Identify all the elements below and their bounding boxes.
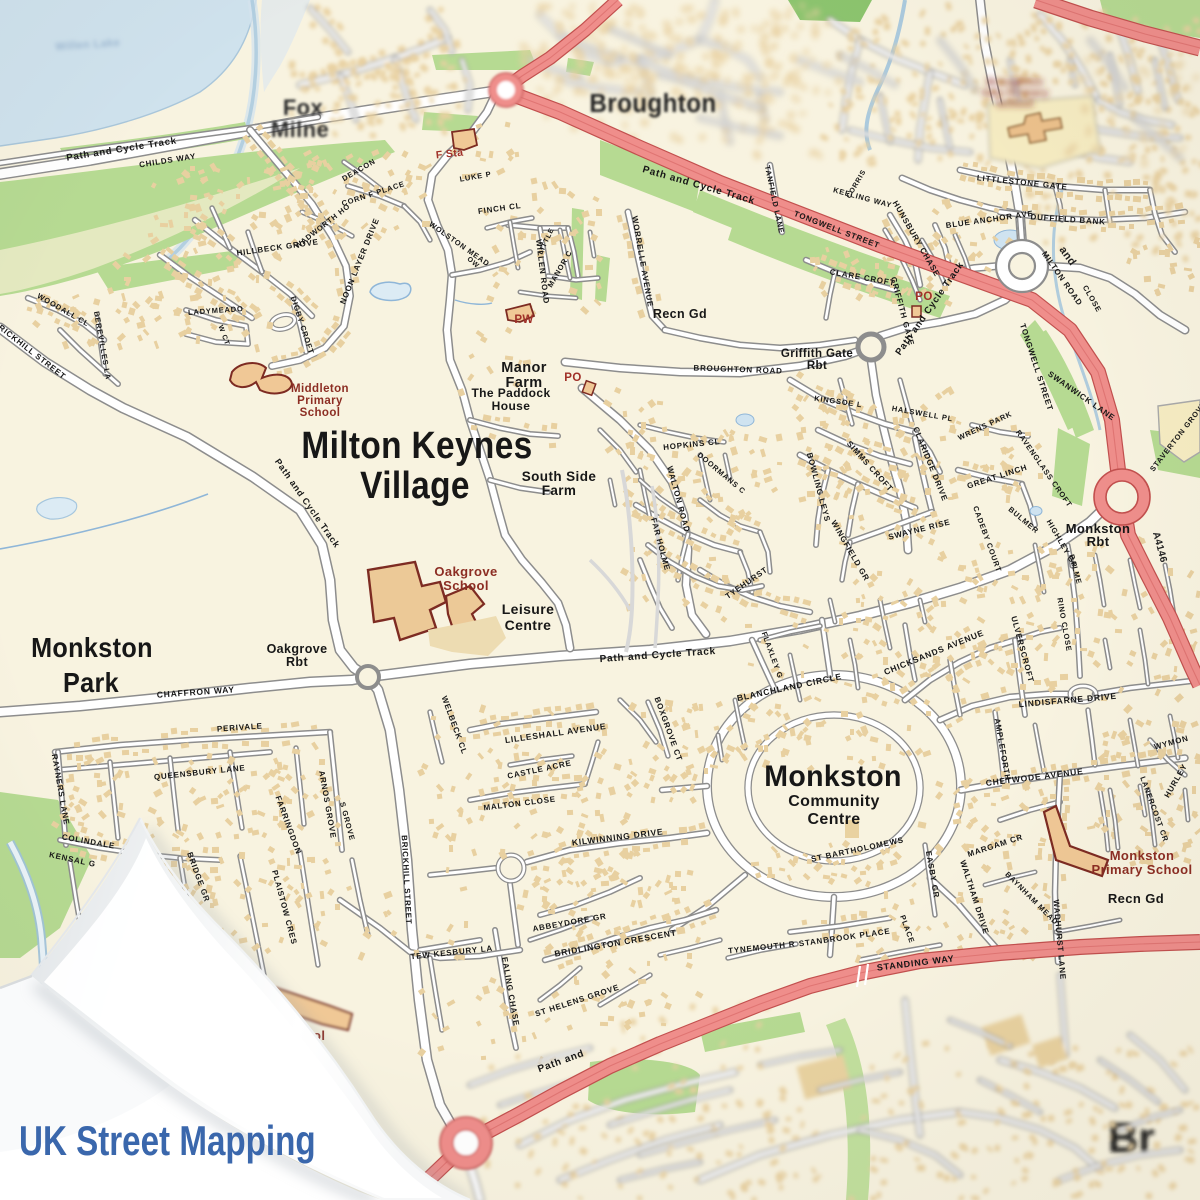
- svg-text:UK Street Mapping: UK Street Mapping: [19, 1118, 316, 1165]
